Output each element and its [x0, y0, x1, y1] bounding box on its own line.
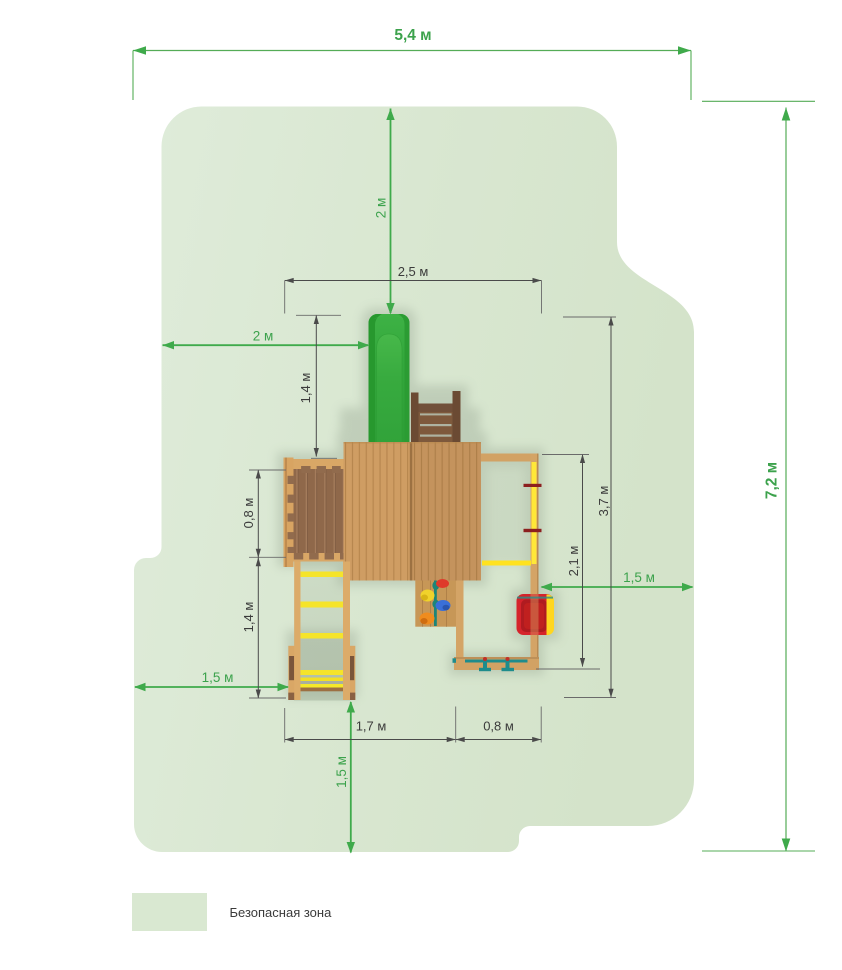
svg-text:1,4 м: 1,4 м — [298, 373, 313, 404]
svg-text:0,8 м: 0,8 м — [241, 498, 256, 529]
svg-text:2,1 м: 2,1 м — [566, 546, 581, 577]
svg-text:Безопасная зона: Безопасная зона — [230, 905, 333, 920]
svg-text:2 м: 2 м — [253, 329, 274, 344]
svg-text:1,5 м: 1,5 м — [623, 570, 655, 585]
svg-text:1,5 м: 1,5 м — [202, 670, 234, 685]
svg-text:1,7 м: 1,7 м — [356, 719, 387, 734]
svg-text:2,5 м: 2,5 м — [398, 264, 429, 279]
svg-text:3,7 м: 3,7 м — [596, 486, 611, 517]
svg-text:7,2 м: 7,2 м — [764, 462, 781, 499]
svg-text:1,5 м: 1,5 м — [334, 756, 349, 788]
svg-text:1,4 м: 1,4 м — [241, 602, 256, 633]
svg-text:5,4 м: 5,4 м — [394, 27, 431, 44]
svg-text:2 м: 2 м — [374, 198, 389, 219]
svg-text:0,8 м: 0,8 м — [483, 719, 514, 734]
